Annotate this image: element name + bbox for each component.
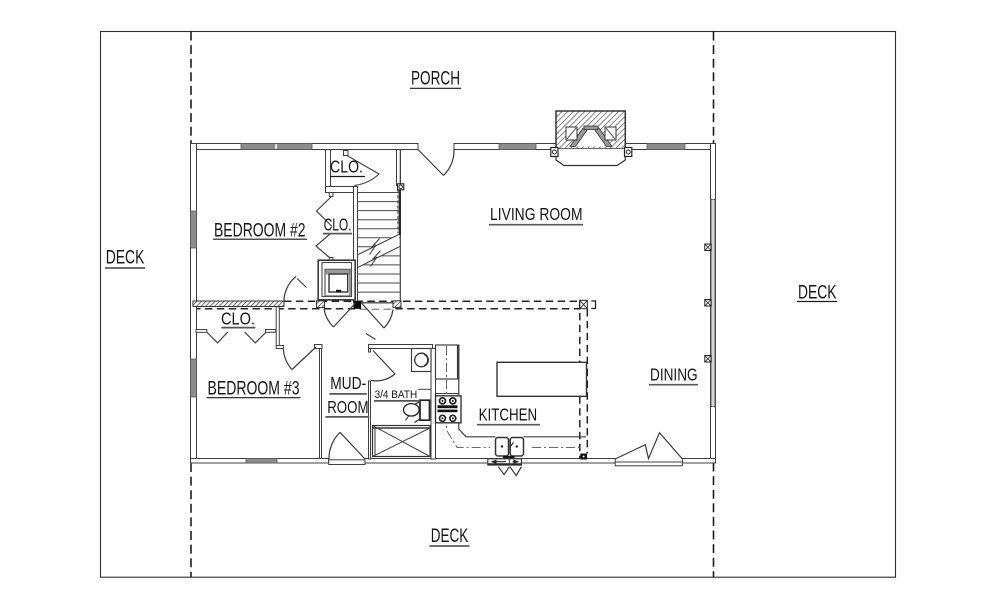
svg-text:BEDROOM #3: BEDROOM #3 [208, 379, 300, 400]
svg-text:DECK: DECK [431, 526, 469, 547]
svg-text:CLO.: CLO. [324, 214, 352, 234]
svg-text:PORCH: PORCH [411, 69, 460, 90]
svg-text:DECK: DECK [106, 248, 145, 269]
svg-text:CLO.: CLO. [330, 157, 363, 177]
svg-text:LIVING ROOM: LIVING ROOM [490, 204, 583, 224]
svg-text:MUD-: MUD- [330, 373, 366, 393]
svg-text:ROOM: ROOM [327, 397, 368, 417]
svg-text:DECK: DECK [798, 283, 837, 304]
svg-text:BEDROOM #2: BEDROOM #2 [214, 221, 306, 242]
svg-text:DINING: DINING [650, 364, 698, 384]
svg-text:3/4 BATH: 3/4 BATH [375, 389, 418, 401]
svg-text:CLO.: CLO. [221, 309, 255, 329]
svg-text:KITCHEN: KITCHEN [479, 405, 537, 425]
